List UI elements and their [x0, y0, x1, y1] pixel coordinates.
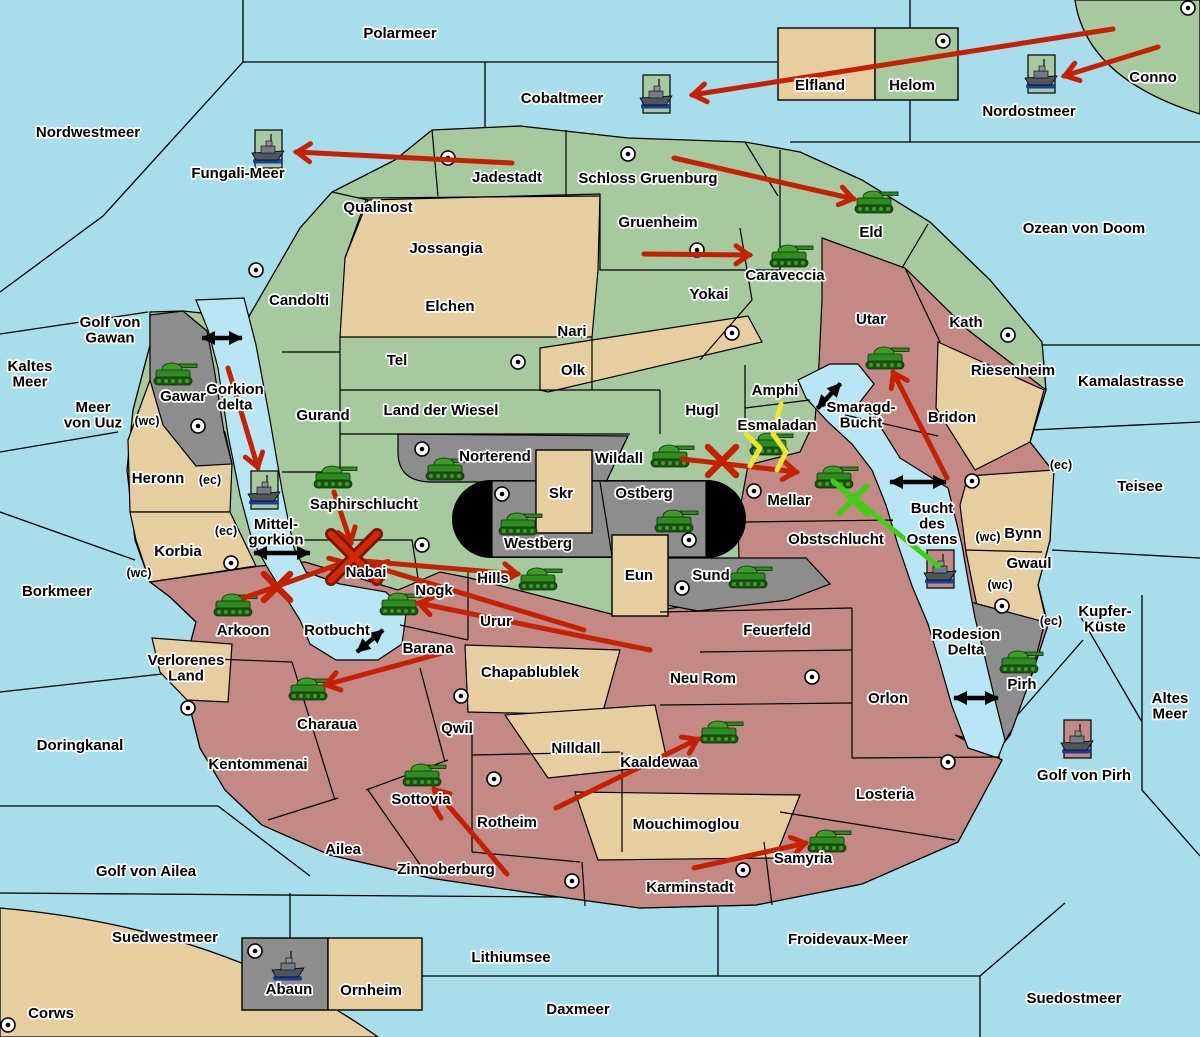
ornheim-box: [328, 938, 422, 1010]
svg-text:Nogk: Nogk: [415, 582, 453, 599]
svg-text:Kamalastrasse: Kamalastrasse: [1078, 373, 1184, 390]
svg-text:Skr: Skr: [549, 485, 573, 502]
game-map: PolarmeerNordwestmeerCobaltmeerFungali-M…: [0, 0, 1200, 1037]
region-label-urur: Urur: [480, 613, 512, 630]
svg-text:Altes: Altes: [1152, 690, 1189, 707]
region-label-jossangia: Jossangia: [409, 240, 483, 257]
svg-text:Kentommenai: Kentommenai: [208, 756, 307, 773]
sea-label-golf-von-ailea: Golf von Ailea: [96, 863, 197, 880]
svg-text:Ozean von Doom: Ozean von Doom: [1023, 220, 1146, 237]
svg-text:Eun: Eun: [625, 567, 653, 584]
coast-label-2: (ec): [215, 524, 237, 538]
svg-text:Norterend: Norterend: [459, 448, 531, 465]
supply-center-karminstadt: [736, 863, 750, 877]
svg-text:Bynn: Bynn: [1004, 525, 1042, 542]
supply-center-pirh: [995, 599, 1009, 613]
svg-text:delta: delta: [217, 397, 253, 414]
svg-text:Cobaltmeer: Cobaltmeer: [521, 90, 604, 107]
svg-text:Caraveccia: Caraveccia: [745, 267, 825, 284]
coast-label-3: (wc): [127, 566, 152, 580]
supply-center-mellar: [747, 484, 761, 498]
svg-text:von Uuz: von Uuz: [64, 415, 122, 432]
region-label-arkoon: Arkoon: [217, 622, 270, 639]
map-svg: PolarmeerNordwestmeerCobaltmeerFungali-M…: [0, 0, 1200, 1037]
svg-text:Jadestadt: Jadestadt: [472, 169, 542, 186]
supply-center-abaun: [248, 944, 262, 958]
svg-text:Urur: Urur: [480, 613, 512, 630]
svg-text:gorkion: gorkion: [249, 532, 304, 549]
region-label-karminstadt: Karminstadt: [646, 879, 734, 896]
region-label-bridon: Bridon: [928, 409, 976, 426]
sea-label-suedwestmeer: Suedwestmeer: [112, 929, 218, 946]
sea-label-suedostmeer: Suedostmeer: [1026, 990, 1121, 1007]
region-label-qualinost: Qualinost: [343, 199, 412, 216]
sea-label-altes-meer: AltesMeer: [1152, 690, 1189, 723]
svg-text:Barana: Barana: [403, 640, 455, 657]
supply-center-westberg: [495, 487, 509, 501]
region-label-eld: Eld: [859, 224, 882, 241]
svg-text:Borkmeer: Borkmeer: [22, 583, 92, 600]
region-label-mouchimoglou: Mouchimoglou: [633, 816, 740, 833]
region-label-chapablublek: Chapablublek: [481, 664, 580, 681]
svg-text:Meer: Meer: [75, 399, 110, 416]
svg-text:Corws: Corws: [28, 1005, 74, 1022]
region-label-nari: Nari: [557, 323, 586, 340]
region-label-ostberg: Ostberg: [615, 485, 673, 502]
move-arrow-to-caraveccia: [644, 254, 750, 255]
svg-text:Chapablublek: Chapablublek: [481, 664, 580, 681]
svg-text:Gawan: Gawan: [85, 330, 134, 347]
svg-text:Gawar: Gawar: [160, 388, 206, 405]
supply-center-ostberg: [682, 533, 696, 547]
region-label-korbia: Korbia: [154, 543, 202, 560]
svg-text:Hugl: Hugl: [685, 402, 718, 419]
svg-text:Orlon: Orlon: [868, 690, 908, 707]
svg-text:Arkoon: Arkoon: [217, 622, 270, 639]
svg-text:Teisee: Teisee: [1117, 478, 1163, 495]
svg-text:Fungali-Meer: Fungali-Meer: [191, 165, 285, 182]
sea-label-golf-von-gawan: Golf vonGawan: [80, 314, 141, 347]
region-label-corws: Corws: [28, 1005, 74, 1022]
ship-unit-cobaltmeer[interactable]: [640, 75, 672, 113]
sea-label-borkmeer: Borkmeer: [22, 583, 92, 600]
svg-text:Eld: Eld: [859, 224, 882, 241]
region-label-bynn: Bynn: [1004, 525, 1042, 542]
region-label-gruenheim: Gruenheim: [618, 214, 697, 231]
region-label-sottovia: Sottovia: [391, 791, 451, 808]
coast-label-5: (wc): [976, 530, 1001, 544]
svg-text:Golf von Pirh: Golf von Pirh: [1037, 767, 1131, 784]
supply-center-sund: [675, 581, 689, 595]
region-label-feuerfeld: Feuerfeld: [743, 622, 811, 639]
supply-center-schloss-gruenburg: [621, 147, 635, 161]
supply-center-qwil: [454, 689, 468, 703]
svg-text:Schloss Gruenburg: Schloss Gruenburg: [578, 170, 717, 187]
region-label-zinnoberburg: Zinnoberburg: [397, 861, 495, 878]
supply-center-corws: [1, 1018, 15, 1032]
region-label-yokai: Yokai: [690, 286, 729, 303]
svg-text:Riesenheim: Riesenheim: [971, 362, 1055, 379]
svg-text:Obstschlucht: Obstschlucht: [788, 531, 884, 548]
region-label-mellar: Mellar: [767, 492, 811, 509]
region-label-gawar: Gawar: [160, 388, 206, 405]
region-label-orlon: Orlon: [868, 690, 908, 707]
svg-text:Conno: Conno: [1129, 69, 1176, 86]
region-label-neu-rom: Neu Rom: [670, 670, 736, 687]
supply-center-bridon: [965, 474, 979, 488]
sea-label-nordostmeer: Nordostmeer: [982, 103, 1076, 120]
svg-text:Yokai: Yokai: [690, 286, 729, 303]
region-label-jadestadt: Jadestadt: [472, 169, 542, 186]
region-label-hugl: Hugl: [685, 402, 718, 419]
svg-text:Rotbucht: Rotbucht: [304, 622, 370, 639]
svg-text:Neu Rom: Neu Rom: [670, 670, 736, 687]
svg-text:Land der Wiesel: Land der Wiesel: [384, 402, 499, 419]
svg-text:Land: Land: [168, 668, 204, 685]
coast-label-0: (wc): [135, 414, 160, 428]
svg-text:Nilldall: Nilldall: [551, 740, 600, 757]
svg-text:Kaaldewaa: Kaaldewaa: [620, 754, 698, 771]
supply-center-kath: [1001, 328, 1015, 342]
sea-label-polarmeer: Polarmeer: [363, 25, 437, 42]
region-label-samyria: Samyria: [774, 850, 833, 867]
svg-text:Mittel-: Mittel-: [254, 516, 298, 533]
svg-text:Nabai: Nabai: [346, 564, 387, 581]
supply-center-kentommenai: [181, 701, 195, 715]
svg-text:Feuerfeld: Feuerfeld: [743, 622, 811, 639]
svg-text:Daxmeer: Daxmeer: [546, 1001, 610, 1018]
region-label-olk: Olk: [561, 362, 586, 379]
sea-label-mittel-gorkion: Mittel-gorkion: [249, 516, 304, 549]
region-label-heronn: Heronn: [132, 470, 185, 487]
svg-text:Tel: Tel: [387, 352, 408, 369]
supply-center-yokai: [725, 326, 739, 340]
svg-text:Sund: Sund: [692, 567, 730, 584]
svg-text:Gwaul: Gwaul: [1006, 555, 1051, 572]
svg-text:Meer: Meer: [12, 374, 47, 391]
svg-text:Delta: Delta: [948, 642, 985, 659]
svg-text:Smaragd-: Smaragd-: [826, 399, 895, 416]
svg-text:Abaun: Abaun: [266, 981, 313, 998]
svg-text:Kupfer-: Kupfer-: [1078, 603, 1131, 620]
supply-center-norterend: [415, 442, 429, 456]
svg-text:Korbia: Korbia: [154, 543, 202, 560]
region-label-amphi: Amphi: [752, 382, 799, 399]
region-label-elchen: Elchen: [425, 298, 474, 315]
svg-text:Helom: Helom: [889, 77, 935, 94]
region-label-norterend: Norterend: [459, 448, 531, 465]
coast-label-1: (ec): [199, 473, 221, 487]
sea-label-kamalastrasse: Kamalastrasse: [1078, 373, 1184, 390]
svg-text:Gurand: Gurand: [296, 407, 349, 424]
sea-label-golf-von-pirh: Golf von Pirh: [1037, 767, 1131, 784]
region-label-losteria: Losteria: [856, 786, 915, 803]
region-label-eun: Eun: [625, 567, 653, 584]
svg-text:Ostberg: Ostberg: [615, 485, 673, 502]
supply-center-rotheim: [487, 772, 501, 786]
svg-text:Nari: Nari: [557, 323, 586, 340]
sea-label-lithiumsee: Lithiumsee: [471, 949, 550, 966]
supply-center-tel: [511, 355, 525, 369]
svg-text:Doringkanal: Doringkanal: [37, 737, 124, 754]
svg-text:Golf von Ailea: Golf von Ailea: [96, 863, 197, 880]
svg-text:Polarmeer: Polarmeer: [363, 25, 437, 42]
supply-center-arkoon: [224, 556, 238, 570]
sea-label-rotbucht: Rotbucht: [304, 622, 370, 639]
svg-text:Hills: Hills: [477, 570, 509, 587]
sea-label-daxmeer: Daxmeer: [546, 1001, 610, 1018]
ship-unit-fungali-meer[interactable]: [252, 130, 284, 168]
region-label-saphirschlucht: Saphirschlucht: [310, 496, 418, 513]
region-label-abaun: Abaun: [266, 981, 313, 998]
svg-text:Esmaladan: Esmaladan: [737, 417, 816, 434]
supply-center-hills: [415, 538, 429, 552]
region-label-barana: Barana: [403, 640, 455, 657]
region-label-ailea: Ailea: [325, 841, 362, 858]
svg-text:Jossangia: Jossangia: [409, 240, 483, 257]
svg-text:Meer: Meer: [1152, 706, 1187, 723]
region-label-kaaldewaa: Kaaldewaa: [620, 754, 698, 771]
region-label-charaua: Charaua: [297, 716, 358, 733]
svg-text:Charaua: Charaua: [297, 716, 358, 733]
supply-center-neu-rom: [805, 670, 819, 684]
supply-center-conno: [1181, 1, 1195, 15]
svg-text:Rotheim: Rotheim: [477, 814, 537, 831]
region-label-hills: Hills: [477, 570, 509, 587]
svg-text:Suedostmeer: Suedostmeer: [1026, 990, 1121, 1007]
svg-text:Wildall: Wildall: [595, 450, 643, 467]
svg-text:Ailea: Ailea: [325, 841, 362, 858]
svg-text:Westberg: Westberg: [504, 535, 572, 552]
supply-center-gawar: [191, 419, 205, 433]
sea-label-doringkanal: Doringkanal: [37, 737, 124, 754]
svg-text:Samyria: Samyria: [774, 850, 833, 867]
svg-text:Küste: Küste: [1084, 619, 1126, 636]
svg-text:Heronn: Heronn: [132, 470, 185, 487]
region-label-schloss-gruenburg: Schloss Gruenburg: [578, 170, 717, 187]
region-label-kath: Kath: [949, 314, 982, 331]
sea-label-fungali-meer: Fungali-Meer: [191, 165, 285, 182]
ship-unit-golf-von-pirh[interactable]: [1061, 720, 1093, 758]
region-label-riesenheim: Riesenheim: [971, 362, 1055, 379]
svg-text:Kaltes: Kaltes: [7, 358, 52, 375]
region-label-rotheim: Rotheim: [477, 814, 537, 831]
svg-text:Sottovia: Sottovia: [391, 791, 451, 808]
sea-label-ozean-von-doom: Ozean von Doom: [1023, 220, 1146, 237]
region-label-tel: Tel: [387, 352, 408, 369]
svg-text:Nordwestmeer: Nordwestmeer: [36, 124, 140, 141]
svg-text:Bridon: Bridon: [928, 409, 976, 426]
svg-text:Ostens: Ostens: [907, 531, 958, 548]
svg-text:Bucht: Bucht: [840, 415, 883, 432]
svg-text:Utar: Utar: [856, 311, 886, 328]
svg-text:Losteria: Losteria: [856, 786, 915, 803]
ship-unit-mittel-gorkion[interactable]: [248, 471, 280, 509]
coast-label-4: (ec): [1050, 458, 1072, 472]
region-label-pirh: Pirh: [1007, 676, 1036, 693]
svg-text:des: des: [919, 516, 945, 533]
svg-text:Gorkion: Gorkion: [206, 381, 264, 398]
svg-text:Karminstadt: Karminstadt: [646, 879, 734, 896]
region-label-wildall: Wildall: [595, 450, 643, 467]
region-label-esmaladan: Esmaladan: [737, 417, 816, 434]
svg-text:Froidevaux-Meer: Froidevaux-Meer: [788, 931, 908, 948]
region-label-conno: Conno: [1129, 69, 1176, 86]
svg-text:Suedwestmeer: Suedwestmeer: [112, 929, 218, 946]
region-label-nilldall: Nilldall: [551, 740, 600, 757]
svg-text:Mouchimoglou: Mouchimoglou: [633, 816, 740, 833]
region-label-sund: Sund: [692, 567, 730, 584]
svg-text:Kath: Kath: [949, 314, 982, 331]
sea-label-froidevaux-meer: Froidevaux-Meer: [788, 931, 908, 948]
sea-label-kaltes-meer: KaltesMeer: [7, 358, 52, 391]
svg-text:Ornheim: Ornheim: [340, 982, 402, 999]
svg-text:Nordostmeer: Nordostmeer: [982, 103, 1076, 120]
sea-label-teisee: Teisee: [1117, 478, 1163, 495]
region-label-helom: Helom: [889, 77, 935, 94]
region-label-kentommenai: Kentommenai: [208, 756, 307, 773]
svg-text:Amphi: Amphi: [752, 382, 799, 399]
region-label-nogk: Nogk: [415, 582, 453, 599]
region-label-qwil: Qwil: [441, 720, 473, 737]
svg-text:Saphirschlucht: Saphirschlucht: [310, 496, 418, 513]
supply-center-candolti: [249, 263, 263, 277]
svg-text:Gruenheim: Gruenheim: [618, 214, 697, 231]
supply-center-helom: [936, 34, 950, 48]
region-label-nabai: Nabai: [346, 564, 387, 581]
sea-label-cobaltmeer: Cobaltmeer: [521, 90, 604, 107]
ship-unit-nordostmeer[interactable]: [1025, 55, 1057, 93]
supply-center-zinnoberburg: [565, 874, 579, 888]
region-label-gwaul: Gwaul: [1006, 555, 1051, 572]
region-label-obstschlucht: Obstschlucht: [788, 531, 884, 548]
svg-text:Verlorenes: Verlorenes: [148, 652, 225, 669]
svg-text:Qualinost: Qualinost: [343, 199, 412, 216]
svg-text:Mellar: Mellar: [767, 492, 811, 509]
svg-text:Zinnoberburg: Zinnoberburg: [397, 861, 495, 878]
region-label-caraveccia: Caraveccia: [745, 267, 825, 284]
svg-text:Candolti: Candolti: [269, 292, 329, 309]
sea-label-kupfer-kueste: Kupfer-Küste: [1078, 603, 1131, 636]
region-label-utar: Utar: [856, 311, 886, 328]
sea-label-nordwestmeer: Nordwestmeer: [36, 124, 140, 141]
svg-text:Elfland: Elfland: [795, 77, 845, 94]
coast-label-6: (wc): [988, 578, 1013, 592]
region-label-skr: Skr: [549, 485, 573, 502]
svg-text:Pirh: Pirh: [1007, 676, 1036, 693]
svg-text:Elchen: Elchen: [425, 298, 474, 315]
svg-text:Golf von: Golf von: [80, 314, 141, 331]
coast-label-7: (ec): [1040, 614, 1062, 628]
region-label-land-der-wiesel: Land der Wiesel: [384, 402, 499, 419]
svg-text:Lithiumsee: Lithiumsee: [471, 949, 550, 966]
svg-text:Rodesion: Rodesion: [932, 626, 1000, 643]
region-label-ornheim: Ornheim: [340, 982, 402, 999]
svg-text:Olk: Olk: [561, 362, 586, 379]
svg-text:Bucht: Bucht: [911, 500, 954, 517]
region-label-westberg: Westberg: [504, 535, 572, 552]
region-label-elfland: Elfland: [795, 77, 845, 94]
region-label-candolti: Candolti: [269, 292, 329, 309]
region-label-gurand: Gurand: [296, 407, 349, 424]
supply-center-losteria: [941, 755, 955, 769]
svg-text:Qwil: Qwil: [441, 720, 473, 737]
